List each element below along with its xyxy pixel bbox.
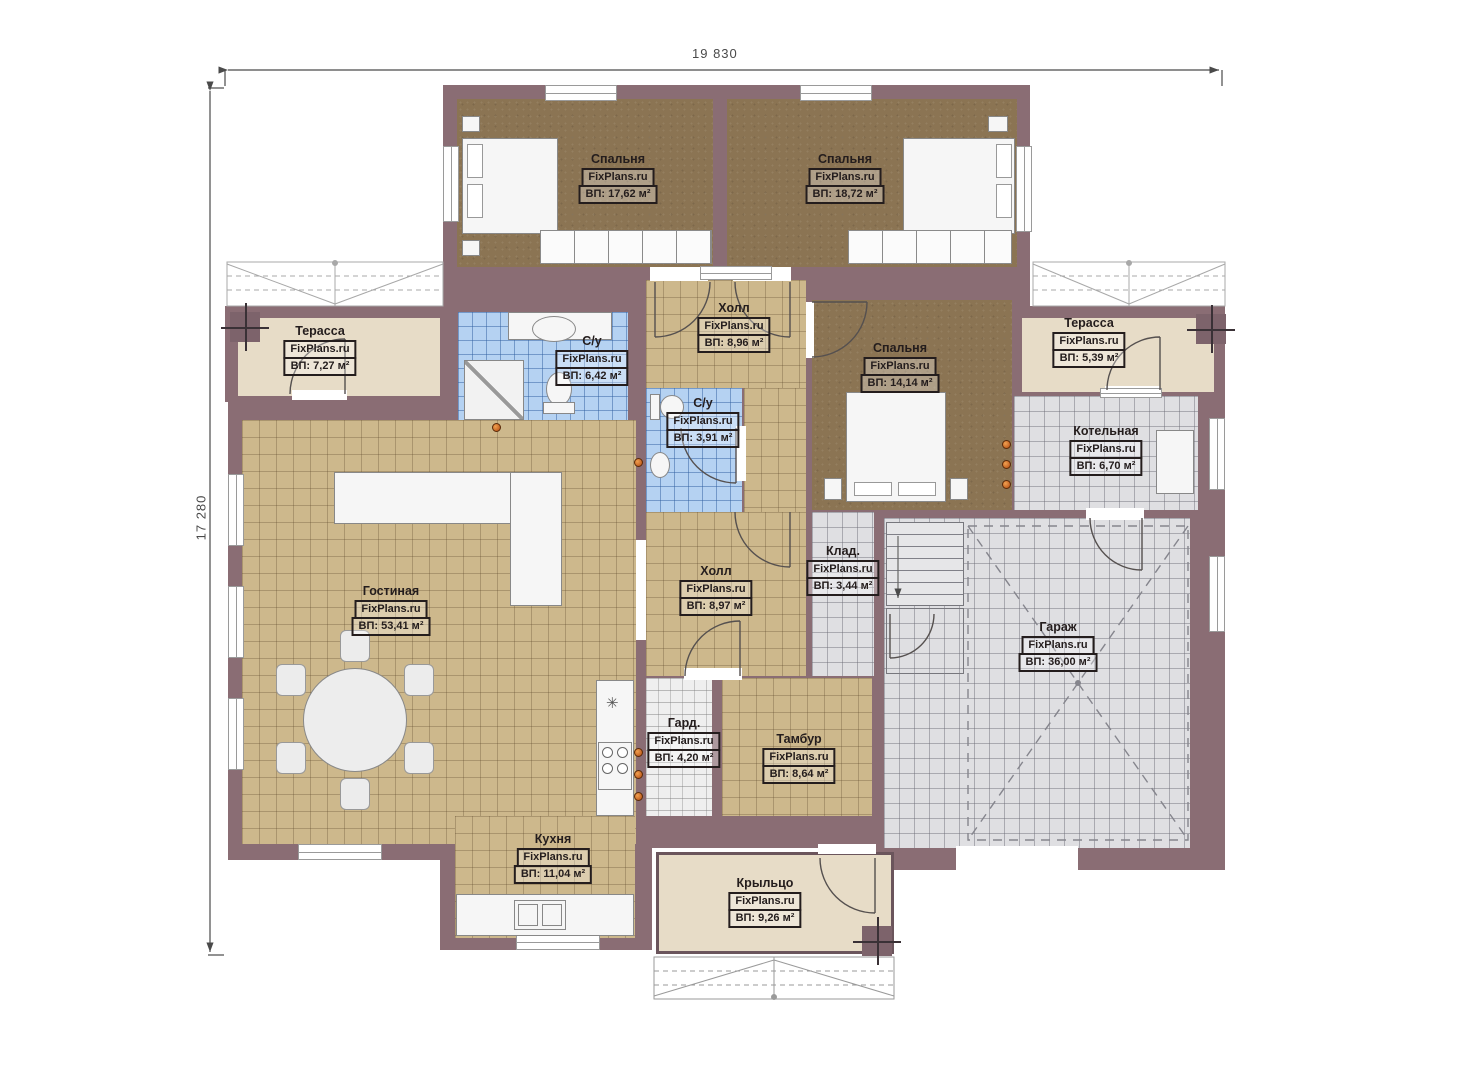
- room-label-storage: Клад. FixPlans.ru ВП: 3,44 м²: [806, 544, 879, 596]
- radiator-dot: [1002, 460, 1011, 469]
- understairs-closet: [886, 608, 964, 674]
- nightstand: [950, 478, 968, 500]
- bed-pillow: [467, 184, 483, 218]
- nightstand: [824, 478, 842, 500]
- room-label-bedroom-3: Спальня FixPlans.ru ВП: 14,14 м²: [861, 341, 940, 393]
- room-name: Гараж: [1039, 620, 1076, 634]
- staircase: [886, 522, 964, 606]
- kitchen-sink-bowl: [542, 904, 562, 926]
- room-name: Спальня: [873, 341, 927, 355]
- room-area: ВП: 53,41 м²: [352, 617, 431, 636]
- stove-burner: [602, 747, 613, 758]
- room-area: ВП: 6,70 м²: [1070, 457, 1143, 476]
- sofa-vertical: [510, 472, 562, 606]
- room-name: Холл: [700, 564, 731, 578]
- wardrobe-strip: [540, 230, 712, 264]
- window: [1209, 418, 1225, 490]
- sink: [650, 452, 670, 478]
- room-label-tambour: Тамбур FixPlans.ru ВП: 8,64 м²: [762, 732, 835, 784]
- window: [1016, 146, 1032, 232]
- room-area: ВП: 7,27 м²: [284, 357, 357, 376]
- toilet-tank: [543, 402, 575, 414]
- window: [228, 698, 244, 770]
- room-area: ВП: 36,00 м²: [1019, 653, 1098, 672]
- window: [228, 474, 244, 546]
- room-label-kitchen: Кухня FixPlans.ru ВП: 11,04 м²: [514, 832, 592, 884]
- pergola-left: [227, 261, 443, 307]
- dimension-left-label: 17 280: [193, 495, 208, 541]
- room-label-living: Гостиная FixPlans.ru ВП: 53,41 м²: [352, 584, 431, 636]
- stove-burner: [617, 763, 628, 774]
- bed-pillow: [854, 482, 892, 496]
- stove-burner: [602, 763, 613, 774]
- cross-marker: [1196, 314, 1226, 344]
- room-label-wardrobe: Гард. FixPlans.ru ВП: 4,20 м²: [647, 716, 720, 768]
- window: [700, 266, 772, 280]
- dining-table: [303, 668, 407, 772]
- window: [800, 85, 872, 101]
- room-name: Клад.: [826, 544, 860, 558]
- window: [443, 146, 459, 222]
- chair: [404, 742, 434, 774]
- room-name: Гостиная: [363, 584, 420, 598]
- room-label-bathroom-1: С/у FixPlans.ru ВП: 6,42 м²: [555, 334, 628, 386]
- nightstand: [462, 240, 480, 256]
- room-name: Крыльцо: [737, 876, 794, 890]
- room-label-hall-top: Холл FixPlans.ru ВП: 8,96 м²: [697, 301, 770, 353]
- radiator-dot: [1002, 480, 1011, 489]
- room-label-bedroom-1: Спальня FixPlans.ru ВП: 17,62 м²: [579, 152, 658, 204]
- doorway-boiler: [1086, 508, 1144, 520]
- doorway-bedroom-3: [806, 302, 814, 358]
- radiator-dot: [492, 423, 501, 432]
- window: [1209, 556, 1225, 632]
- dimension-top-label: 19 830: [692, 46, 738, 61]
- chair: [340, 778, 370, 810]
- radiator-dot: [634, 458, 643, 467]
- room-name: С/у: [582, 334, 601, 348]
- corridor-floor: [744, 388, 806, 512]
- radiator-dot: [1002, 440, 1011, 449]
- room-label-bathroom-2: С/у FixPlans.ru ВП: 3,91 м²: [666, 396, 739, 448]
- opening-living-hall: [636, 540, 646, 640]
- room-area: ВП: 14,14 м²: [861, 374, 940, 393]
- room-name: Кухня: [535, 832, 572, 846]
- porch-steps: [654, 957, 894, 1000]
- room-name: Тамбур: [776, 732, 821, 746]
- wardrobe-strip: [848, 230, 1012, 264]
- room-area: ВП: 6,42 м²: [556, 367, 629, 386]
- bed-pillow: [996, 184, 1012, 218]
- room-area: ВП: 3,44 м²: [807, 577, 880, 596]
- room-name: С/у: [693, 396, 712, 410]
- cross-marker: [862, 926, 892, 956]
- nightstand: [462, 116, 480, 132]
- room-area: ВП: 9,26 м²: [729, 909, 802, 928]
- window: [298, 844, 382, 860]
- room-label-boiler: Котельная FixPlans.ru ВП: 6,70 м²: [1069, 424, 1142, 476]
- room-label-terrace-right: Терасса FixPlans.ru ВП: 5,39 м²: [1052, 316, 1125, 368]
- nightstand: [988, 116, 1008, 132]
- bed-pillow: [467, 144, 483, 178]
- window: [228, 586, 244, 658]
- chair: [276, 742, 306, 774]
- room-name: Котельная: [1073, 424, 1138, 438]
- toilet-tank: [650, 394, 660, 420]
- room-area: ВП: 8,97 м²: [680, 597, 753, 616]
- doorway-tambour: [684, 668, 742, 680]
- chair: [404, 664, 434, 696]
- pergola-right: [1033, 261, 1225, 307]
- room-label-bedroom-2: Спальня FixPlans.ru ВП: 18,72 м²: [806, 152, 885, 204]
- radiator-dot: [634, 792, 643, 801]
- room-area: ВП: 5,39 м²: [1053, 349, 1126, 368]
- doorway-porch: [818, 844, 876, 854]
- room-area: ВП: 8,64 м²: [763, 765, 836, 784]
- window: [516, 934, 600, 950]
- room-name: Терасса: [295, 324, 345, 338]
- stove-burner: [617, 747, 628, 758]
- bed-pillow: [996, 144, 1012, 178]
- room-name: Гард.: [668, 716, 701, 730]
- room-area: ВП: 11,04 м²: [514, 865, 592, 884]
- boiler-unit: [1156, 430, 1194, 494]
- window: [545, 85, 617, 101]
- room-name: Холл: [718, 301, 749, 315]
- radiator-dot: [634, 748, 643, 757]
- room-area: ВП: 18,72 м²: [806, 185, 885, 204]
- shower: [464, 360, 524, 420]
- room-label-terrace-left: Терасса FixPlans.ru ВП: 7,27 м²: [283, 324, 356, 376]
- window: [1100, 388, 1162, 398]
- kitchen-sink-bowl: [518, 904, 538, 926]
- chair: [276, 664, 306, 696]
- sink-symbol: ✳: [606, 694, 619, 712]
- bed-pillow: [898, 482, 936, 496]
- radiator-dot: [634, 770, 643, 779]
- room-label-porch: Крыльцо FixPlans.ru ВП: 9,26 м²: [728, 876, 801, 928]
- room-area: ВП: 4,20 м²: [648, 749, 721, 768]
- room-name: Спальня: [591, 152, 645, 166]
- doorway-terrace-left: [292, 390, 347, 400]
- room-label-hall-mid: Холл FixPlans.ru ВП: 8,97 м²: [679, 564, 752, 616]
- room-name: Спальня: [818, 152, 872, 166]
- cross-marker: [230, 312, 260, 342]
- room-area: ВП: 8,96 м²: [698, 334, 771, 353]
- floor-plan-canvas: 19 830 17 280: [0, 0, 1473, 1080]
- room-area: ВП: 17,62 м²: [579, 185, 658, 204]
- garage-gate-opening: [956, 846, 1078, 870]
- room-name: Терасса: [1064, 316, 1114, 330]
- room-area: ВП: 3,91 м²: [667, 429, 740, 448]
- room-label-garage: Гараж FixPlans.ru ВП: 36,00 м²: [1019, 620, 1098, 672]
